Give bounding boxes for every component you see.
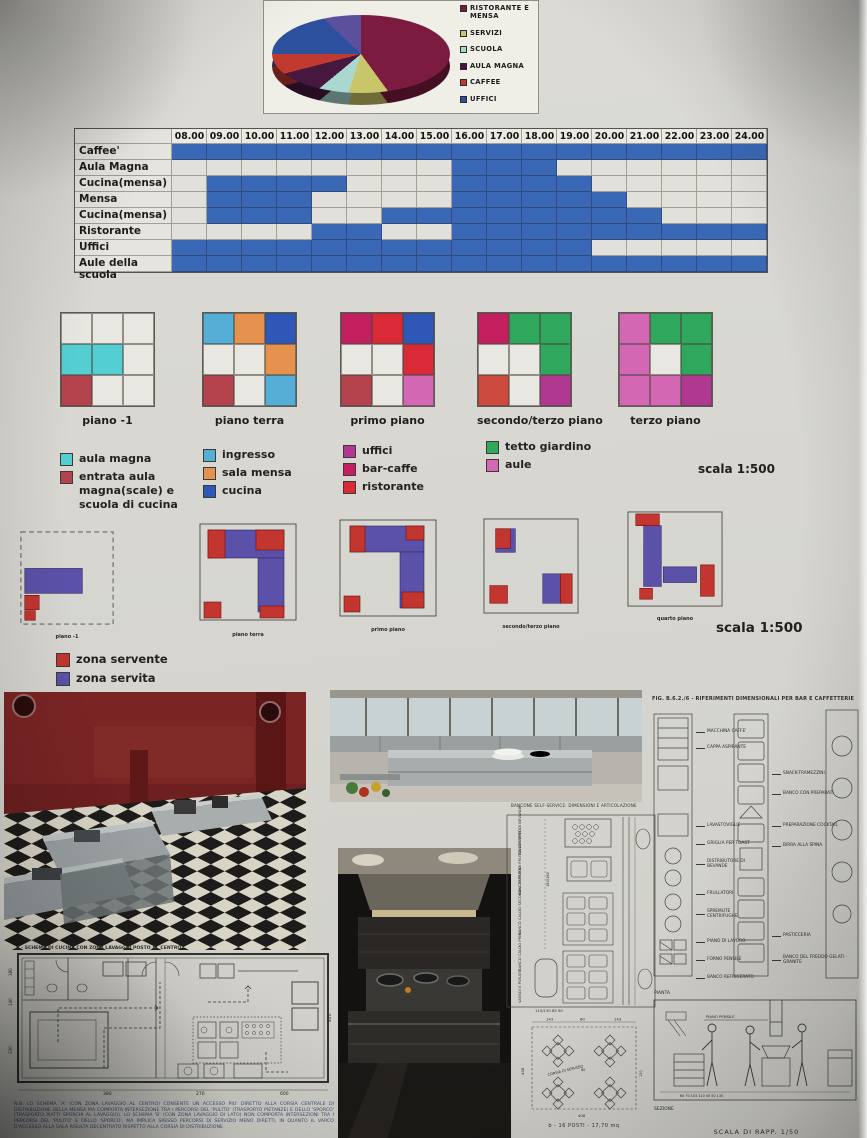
gantt-hour-header: 18.00 bbox=[522, 129, 557, 144]
floor-grid-cell bbox=[478, 313, 509, 344]
gantt-row: Aule della scuola bbox=[75, 256, 767, 272]
kitchen-3d-render-image bbox=[4, 692, 306, 950]
pie-legend: RISTORANTE E MENSASERVIZISCUOLAAULA MAGN… bbox=[460, 4, 538, 111]
pie-legend-swatch bbox=[460, 63, 467, 70]
floor-grid-cell bbox=[619, 375, 650, 406]
gantt-row: Aula Magna bbox=[75, 160, 767, 176]
floor-plan-2: primo piano bbox=[338, 517, 438, 633]
dim-330: 330 bbox=[8, 1046, 13, 1054]
legend-label: aula magna bbox=[79, 452, 151, 466]
floor-grid-cell bbox=[372, 375, 403, 406]
callout-text: FORNO PENSILE bbox=[707, 958, 741, 963]
gantt-row-label: Mensa bbox=[75, 192, 172, 208]
gantt-cell bbox=[347, 176, 382, 192]
gantt-cell bbox=[557, 160, 592, 176]
kitchen-photo-image bbox=[330, 690, 642, 802]
floor-grid-cell bbox=[341, 375, 372, 406]
gantt-cell bbox=[732, 208, 767, 224]
pie-legend-swatch bbox=[460, 46, 467, 53]
dim-143b: 143 bbox=[614, 1017, 622, 1022]
gantt-cell bbox=[487, 144, 522, 160]
gantt-cell bbox=[452, 192, 487, 208]
gantt-row: Ristorante bbox=[75, 224, 767, 240]
gantt-cell bbox=[487, 240, 522, 256]
legend-group-3: tetto giardinoaule bbox=[486, 440, 616, 476]
dim-140: 140 bbox=[8, 998, 13, 1006]
gantt-cell bbox=[242, 144, 277, 160]
fig-title: FIG. B.6.2./6 - RIFERIMENTI DIMENSIONALI… bbox=[652, 696, 862, 702]
legend-item: uffici bbox=[343, 444, 463, 458]
gantt-hour-header: 24.00 bbox=[732, 129, 767, 144]
gantt-row: Caffee' bbox=[75, 144, 767, 160]
gantt-cell bbox=[662, 144, 697, 160]
floor-grid-cell bbox=[341, 344, 372, 375]
floor-grid-cell bbox=[619, 313, 650, 344]
gantt-cell bbox=[627, 160, 662, 176]
callout-text: MACCHINA CAFFE' bbox=[707, 730, 746, 735]
callout-text: GRIGLIA PER TOAST bbox=[707, 842, 750, 847]
gantt-cell bbox=[487, 160, 522, 176]
pianta-label: PIANTA bbox=[654, 990, 671, 996]
counter-section-label: BANCO CALDO SECONDI-CONTORNI bbox=[517, 867, 522, 935]
legend-item: sala mensa bbox=[203, 466, 323, 480]
gantt-cell bbox=[207, 160, 242, 176]
gantt-cell bbox=[242, 176, 277, 192]
pie-legend-swatch bbox=[460, 30, 467, 37]
gantt-cell bbox=[697, 256, 732, 272]
gantt-cell bbox=[347, 256, 382, 272]
pie-legend-swatch bbox=[460, 96, 467, 103]
floor-grid-cell bbox=[234, 313, 265, 344]
legend-item: ristorante bbox=[343, 480, 463, 494]
floor-grid-cell bbox=[61, 344, 92, 375]
floor-grid-cell bbox=[478, 344, 509, 375]
floor-grid-4: terzo piano bbox=[618, 312, 713, 427]
callout-label: SNACK-TRAMEZZINI bbox=[772, 772, 858, 777]
callout-label: BANCO REFRIGERATO bbox=[696, 976, 756, 981]
legend-group-2: ufficibar-cafferistorante bbox=[343, 444, 463, 498]
gantt-cell bbox=[592, 176, 627, 192]
gantt-cell bbox=[627, 192, 662, 208]
floor-grid-cell bbox=[123, 313, 154, 344]
gantt-cell bbox=[627, 224, 662, 240]
gantt-cell bbox=[277, 208, 312, 224]
floor-grid-cell bbox=[234, 375, 265, 406]
gantt-cell bbox=[592, 144, 627, 160]
floor-grid-cell bbox=[681, 313, 712, 344]
gantt-row: Cucina(mensa) bbox=[75, 176, 767, 192]
gantt-cell bbox=[242, 160, 277, 176]
gantt-cell bbox=[172, 144, 207, 160]
gantt-cell bbox=[697, 224, 732, 240]
gantt-cell bbox=[662, 240, 697, 256]
floor-grid-cells bbox=[340, 312, 435, 407]
gantt-cell bbox=[242, 240, 277, 256]
gantt-cell bbox=[662, 224, 697, 240]
poster: RISTORANTE E MENSASERVIZISCUOLAAULA MAGN… bbox=[0, 0, 867, 1138]
gantt-cell bbox=[382, 224, 417, 240]
callout-label: CAPPA ASPIRANTE bbox=[696, 746, 756, 751]
callout-text: BANCO DEL FREDDO GELATI - GRANITE bbox=[783, 956, 858, 965]
floor-grid-cell bbox=[509, 313, 540, 344]
floor-grid-cell bbox=[123, 344, 154, 375]
gantt-hour-header: 20.00 bbox=[592, 129, 627, 144]
legend-group-0: aula magnaentrata aula magna(scale) e sc… bbox=[60, 452, 200, 515]
floor-plan-drawing bbox=[625, 510, 725, 608]
callout-label: GRIGLIA PER TOAST bbox=[696, 842, 756, 847]
gantt-cell bbox=[347, 208, 382, 224]
gantt-hour-header: 16.00 bbox=[452, 129, 487, 144]
corsia-label: CORSIA DI SERVIZIO bbox=[547, 1064, 584, 1077]
tech-left-panel: A - SCHEMA DI CUCINA CON ZONA LAVAGGIO P… bbox=[8, 942, 338, 1100]
floor-grid-cell bbox=[478, 375, 509, 406]
callout-text: BANCO CON PREPARATI bbox=[783, 792, 834, 797]
callout-label: SPREMUTE CENTRIFUGHE bbox=[696, 910, 756, 919]
gantt-cell bbox=[662, 160, 697, 176]
zone-legend-swatch bbox=[56, 653, 70, 667]
gantt-cell bbox=[522, 208, 557, 224]
gantt-row-label: Uffici bbox=[75, 240, 172, 256]
gantt-cell bbox=[522, 192, 557, 208]
legend-label: uffici bbox=[362, 444, 392, 458]
gantt-cell bbox=[172, 160, 207, 176]
pie-legend-label: UFFICI bbox=[470, 95, 497, 103]
gantt-cell bbox=[662, 192, 697, 208]
gantt-cell bbox=[557, 256, 592, 272]
zone-legend-swatch bbox=[56, 672, 70, 686]
gantt-cell bbox=[312, 208, 347, 224]
gantt-cell bbox=[207, 176, 242, 192]
gantt-cell bbox=[592, 224, 627, 240]
callout-text: PREPARAZIONE COCKTAIL bbox=[783, 824, 838, 829]
callout-label: BIRRA ALLA SPINA bbox=[772, 844, 858, 849]
legend-swatch bbox=[60, 453, 73, 466]
gantt-cell bbox=[732, 240, 767, 256]
gantt-cell bbox=[417, 224, 452, 240]
pie-legend-swatch bbox=[460, 5, 467, 12]
gantt-cell bbox=[207, 224, 242, 240]
gantt-cell bbox=[522, 176, 557, 192]
gantt-cell bbox=[452, 176, 487, 192]
floor-grid-3: secondo/terzo piano bbox=[477, 312, 572, 427]
legend-swatch bbox=[486, 441, 499, 454]
gantt-cell bbox=[627, 144, 662, 160]
gantt-cell bbox=[172, 256, 207, 272]
gantt-cell bbox=[382, 208, 417, 224]
floor-grid-cell bbox=[92, 313, 123, 344]
floor-plan-drawing bbox=[482, 516, 580, 616]
callout-text: PIANO DI LAVORO bbox=[707, 940, 745, 945]
legend-swatch bbox=[203, 449, 216, 462]
gantt-cell bbox=[207, 208, 242, 224]
floor-grid-cell bbox=[341, 313, 372, 344]
gantt-header-row: 08.0009.0010.0011.0012.0013.0014.0015.00… bbox=[75, 129, 767, 144]
tech-right-panel: FIG. B.6.2./6 - RIFERIMENTI DIMENSIONALI… bbox=[650, 696, 863, 1138]
gantt-cell bbox=[382, 240, 417, 256]
floor-grid-cells bbox=[60, 312, 155, 407]
legend-item: aule bbox=[486, 458, 616, 472]
floor-plan-label: piano terra bbox=[198, 632, 298, 638]
callout-label: LAVASTOVIGLIE bbox=[696, 824, 756, 829]
scale-label-grids: scala 1:500 bbox=[698, 462, 775, 476]
gantt-hour-header: 12.00 bbox=[312, 129, 347, 144]
floor-plan-label: piano -1 bbox=[14, 634, 120, 640]
gantt-cell bbox=[662, 176, 697, 192]
gantt-cell bbox=[557, 208, 592, 224]
gantt-cell bbox=[697, 176, 732, 192]
tables-layout-panel: 143 60 143 438 408 80 120 CORSIA DI SERV… bbox=[518, 1015, 650, 1133]
zone-legend-item: zona servita bbox=[56, 671, 168, 686]
gantt-hour-header: 13.00 bbox=[347, 129, 382, 144]
gantt-hour-header: 11.00 bbox=[277, 129, 312, 144]
floor-plan-drawing bbox=[198, 520, 298, 624]
gantt-hour-header: 21.00 bbox=[627, 129, 662, 144]
callout-text: PASTICCERIA bbox=[783, 934, 811, 939]
pie-legend-item: CAFFEE bbox=[460, 78, 538, 86]
gantt-hour-header: 17.00 bbox=[487, 129, 522, 144]
pie-legend-label: AULA MAGNA bbox=[470, 62, 524, 70]
gantt-cell bbox=[522, 144, 557, 160]
sect-dims: 60 70 103 110 45 50 135 bbox=[680, 1094, 723, 1098]
gantt-cell bbox=[452, 144, 487, 160]
callout-label: BANCO CON PREPARATI bbox=[772, 792, 858, 797]
floor-grid-label: primo piano bbox=[340, 414, 435, 427]
gantt-cell bbox=[277, 192, 312, 208]
dim-408: 408 bbox=[578, 1113, 586, 1118]
schema-note: N.B. LO SCHEMA 'A' (CON ZONA LAVAGGIO AL… bbox=[14, 1102, 334, 1131]
gantt-cell bbox=[452, 208, 487, 224]
gantt-corner-cell bbox=[75, 129, 172, 144]
floor-grid-cell bbox=[372, 313, 403, 344]
legend-swatch bbox=[203, 467, 216, 480]
gantt-cell bbox=[347, 192, 382, 208]
floor-grid-cell bbox=[681, 344, 712, 375]
floor-grid-cell bbox=[509, 344, 540, 375]
legend-swatch bbox=[486, 459, 499, 472]
gantt-cell bbox=[732, 160, 767, 176]
dim-bottom: 110/130 85 50 bbox=[535, 1008, 563, 1013]
floor-plan-1: piano terra bbox=[198, 520, 298, 638]
gantt-cell bbox=[277, 176, 312, 192]
gantt-cell bbox=[417, 144, 452, 160]
gantt-cell bbox=[662, 256, 697, 272]
gantt-cell bbox=[417, 256, 452, 272]
gantt-cell bbox=[522, 160, 557, 176]
floor-grid-cell bbox=[403, 344, 434, 375]
legend-label: bar-caffe bbox=[362, 462, 418, 476]
pie-chart bbox=[272, 15, 450, 107]
gantt-cell bbox=[452, 240, 487, 256]
pie-top-face bbox=[272, 15, 450, 93]
floor-plan-drawing bbox=[14, 530, 120, 626]
gantt-cell bbox=[242, 224, 277, 240]
floor-grid-cell bbox=[203, 313, 234, 344]
gantt-cell bbox=[627, 208, 662, 224]
gantt-cell bbox=[662, 208, 697, 224]
legend-group-1: ingressosala mensacucina bbox=[203, 448, 323, 502]
dark-kitchen-photo-image bbox=[338, 848, 511, 1138]
dark-kitchen-photo-graphic bbox=[338, 848, 511, 1138]
gantt-hour-header: 15.00 bbox=[417, 129, 452, 144]
callout-label: FRULLATORI bbox=[696, 892, 756, 897]
gantt-row-label: Aula Magna bbox=[75, 160, 172, 176]
gantt-cell bbox=[592, 192, 627, 208]
gantt-cell bbox=[487, 176, 522, 192]
gantt-cell bbox=[347, 160, 382, 176]
callout-label: DISTRIBUTORE DI BEVANDE bbox=[696, 860, 756, 869]
floor-grid-2: primo piano bbox=[340, 312, 435, 427]
floor-grid-label: terzo piano bbox=[618, 414, 713, 427]
callout-label: PREPARAZIONE COCKTAIL bbox=[772, 824, 858, 829]
callout-label: PASTICCERIA bbox=[772, 934, 858, 939]
gantt-hour-header: 09.00 bbox=[207, 129, 242, 144]
floor-grid-label: piano -1 bbox=[60, 414, 155, 427]
dim-270: 270 bbox=[196, 1091, 205, 1097]
gantt-row-label: Caffee' bbox=[75, 144, 172, 160]
pie-legend-item: AULA MAGNA bbox=[460, 62, 538, 70]
dim-820: 820 bbox=[327, 1013, 333, 1022]
legend-swatch bbox=[343, 481, 356, 494]
gantt-cell bbox=[242, 192, 277, 208]
floor-grid-cell bbox=[92, 344, 123, 375]
gantt-cell bbox=[592, 240, 627, 256]
callout-text: BIRRA ALLA SPINA bbox=[783, 844, 822, 849]
floor-grid-cell bbox=[92, 375, 123, 406]
kitchen-photo-graphic bbox=[330, 690, 642, 802]
gantt-cell bbox=[347, 144, 382, 160]
floor-grid-label: piano terra bbox=[202, 414, 297, 427]
zone-legend-label: zona servita bbox=[76, 671, 156, 685]
gantt-cell bbox=[627, 240, 662, 256]
dim-120: 120 bbox=[639, 1071, 643, 1077]
figure-2 bbox=[745, 1026, 760, 1086]
gantt-cell bbox=[732, 144, 767, 160]
floor-grid-cell bbox=[203, 375, 234, 406]
floor-grid-cells bbox=[477, 312, 572, 407]
floor-plan-label: secondo/terzo piano bbox=[482, 624, 580, 630]
gantt-cell bbox=[207, 144, 242, 160]
gantt-cell bbox=[312, 224, 347, 240]
gantt-cell bbox=[277, 240, 312, 256]
gantt-cell bbox=[557, 192, 592, 208]
gantt-cell bbox=[557, 224, 592, 240]
callout-label: PIANO DI LAVORO bbox=[696, 940, 756, 945]
gantt-cell bbox=[172, 192, 207, 208]
legend-item: tetto giardino bbox=[486, 440, 616, 454]
gantt-cell bbox=[697, 144, 732, 160]
gantt-row: Cucina(mensa) bbox=[75, 208, 767, 224]
floor-grid-cell bbox=[650, 344, 681, 375]
gantt-cell bbox=[487, 224, 522, 240]
zone-legend-label: zona servente bbox=[76, 652, 168, 666]
legend-label: sala mensa bbox=[222, 466, 292, 480]
kitchen-3d-render-graphic bbox=[4, 692, 306, 950]
scale-rapp-caption: SCALA DI RAPP. 1/50 bbox=[650, 1128, 863, 1136]
pie-legend-item: UFFICI bbox=[460, 95, 538, 103]
gantt-cell bbox=[417, 176, 452, 192]
gantt-cell bbox=[417, 160, 452, 176]
gantt-cell bbox=[382, 160, 417, 176]
floor-grid-cell bbox=[234, 344, 265, 375]
gantt-row: Uffici bbox=[75, 240, 767, 256]
floor-grid-0: piano -1 bbox=[60, 312, 155, 427]
gantt-cell bbox=[382, 256, 417, 272]
floor-plan-4: quarto piano bbox=[625, 510, 725, 622]
gantt-cell bbox=[277, 224, 312, 240]
gantt-hour-header: 19.00 bbox=[557, 129, 592, 144]
gantt-row-label: Cucina(mensa) bbox=[75, 176, 172, 192]
gantt-cell bbox=[452, 160, 487, 176]
legend-item: bar-caffe bbox=[343, 462, 463, 476]
floor-grid-label: secondo/terzo piano bbox=[477, 414, 572, 427]
dim-600: 600 bbox=[280, 1091, 289, 1097]
gantt-cell bbox=[487, 256, 522, 272]
floor-grid-cell bbox=[540, 375, 571, 406]
floor-grid-cell bbox=[540, 344, 571, 375]
gantt-cell bbox=[592, 208, 627, 224]
floor-grid-cell bbox=[372, 344, 403, 375]
legend-label: ingresso bbox=[222, 448, 275, 462]
gantt-cell bbox=[347, 224, 382, 240]
floor-grid-cell bbox=[123, 375, 154, 406]
zone-legend-item: zona servente bbox=[56, 652, 168, 667]
gantt-cell bbox=[627, 256, 662, 272]
gantt-cell bbox=[172, 208, 207, 224]
piano-pensile-label: PIANO PENSILE bbox=[706, 1014, 735, 1019]
kitchen-schema-drawing: A - SCHEMA DI CUCINA CON ZONA LAVAGGIO P… bbox=[8, 942, 338, 1100]
floor-plan-drawing bbox=[338, 517, 438, 619]
zone-legend: zona serventezona servita bbox=[56, 652, 168, 690]
gantt-cell bbox=[417, 192, 452, 208]
gantt-cell bbox=[627, 176, 662, 192]
dim-height: 150/180 bbox=[546, 871, 550, 887]
dim-143a: 143 bbox=[546, 1017, 554, 1022]
counter-section-label: VASSOI E POSATE bbox=[517, 970, 522, 1003]
gantt-cell bbox=[172, 224, 207, 240]
scale-label-plans: scala 1:500 bbox=[716, 620, 803, 636]
pie-legend-item: SERVIZI bbox=[460, 29, 538, 37]
bar-elevation-drawing: PIANTA PIANO PENSILE bbox=[650, 706, 863, 1126]
self-service-title: BANCONE SELF-SERVICE: DIMENSIONI E ARTIC… bbox=[511, 803, 637, 808]
gantt-cell bbox=[312, 176, 347, 192]
dim-380: 380 bbox=[103, 1091, 112, 1097]
gantt-cell bbox=[312, 144, 347, 160]
gantt-cell bbox=[312, 192, 347, 208]
callout-text: FRULLATORI bbox=[707, 892, 733, 897]
legend-swatch bbox=[60, 471, 73, 484]
pie-legend-item: SCUOLA bbox=[460, 45, 538, 53]
gantt-hour-header: 23.00 bbox=[697, 129, 732, 144]
callout-label: FORNO PENSILE bbox=[696, 958, 756, 963]
gantt-cell bbox=[207, 240, 242, 256]
floor-grid-cell bbox=[265, 375, 296, 406]
callout-label: BANCO DEL FREDDO GELATI - GRANITE bbox=[772, 956, 858, 965]
gantt-row: Mensa bbox=[75, 192, 767, 208]
legend-swatch bbox=[203, 485, 216, 498]
gantt-cell bbox=[277, 144, 312, 160]
dim-180: 180 bbox=[8, 968, 13, 976]
gantt-cell bbox=[207, 256, 242, 272]
floor-grid-cell bbox=[203, 344, 234, 375]
gantt-cell bbox=[242, 256, 277, 272]
gantt-cell bbox=[522, 224, 557, 240]
floor-grid-cell bbox=[540, 313, 571, 344]
legend-item: ingresso bbox=[203, 448, 323, 462]
poster-photo: { "pie_panel": { "legend": [ {"label": "… bbox=[0, 0, 867, 1138]
legend-swatch bbox=[343, 445, 356, 458]
gantt-cell bbox=[452, 256, 487, 272]
floor-grid-cell bbox=[619, 344, 650, 375]
